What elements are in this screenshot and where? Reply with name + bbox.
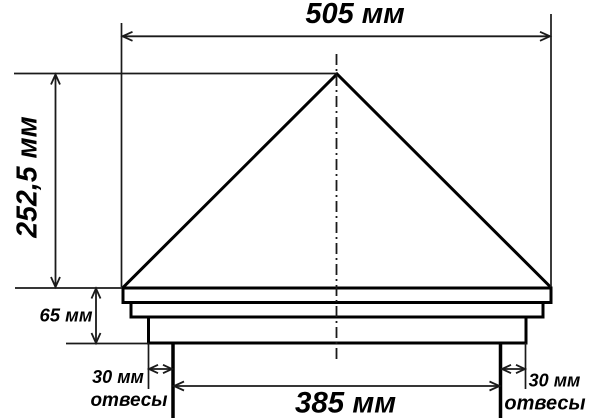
svg-text:65 мм: 65 мм — [39, 305, 92, 326]
svg-text:30 мм: 30 мм — [529, 371, 581, 391]
svg-text:505 мм: 505 мм — [305, 0, 404, 30]
svg-text:252,5 мм: 252,5 мм — [12, 116, 44, 238]
svg-text:отвесы: отвесы — [504, 393, 585, 415]
svg-text:30 мм: 30 мм — [92, 367, 144, 387]
svg-text:385 мм: 385 мм — [295, 387, 396, 418]
svg-text:отвесы: отвесы — [90, 390, 167, 411]
